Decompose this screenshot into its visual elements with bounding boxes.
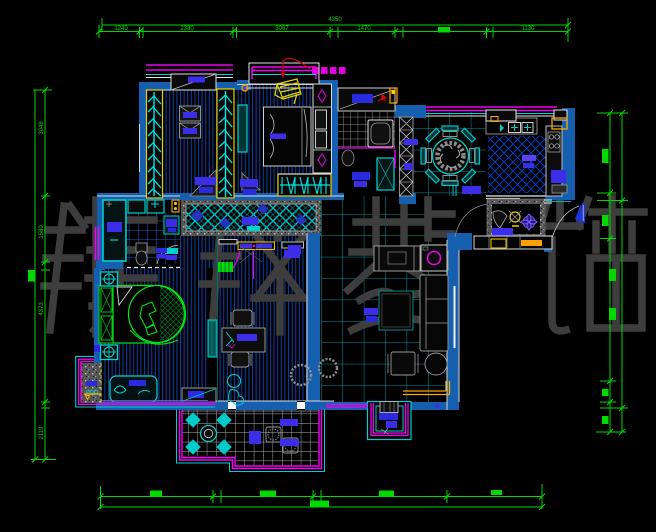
svg-text:1470: 1470: [357, 26, 371, 32]
svg-text:2380: 2380: [180, 26, 194, 32]
svg-text:1580: 1580: [39, 225, 45, 239]
svg-text:1240: 1240: [114, 26, 128, 32]
svg-text:4373: 4373: [39, 302, 45, 316]
svg-text:1130: 1130: [522, 26, 536, 32]
svg-text:4350: 4350: [328, 17, 342, 23]
svg-text:2119: 2119: [39, 426, 45, 440]
svg-text:3048: 3048: [39, 121, 45, 135]
svg-text:3067: 3067: [275, 26, 289, 32]
